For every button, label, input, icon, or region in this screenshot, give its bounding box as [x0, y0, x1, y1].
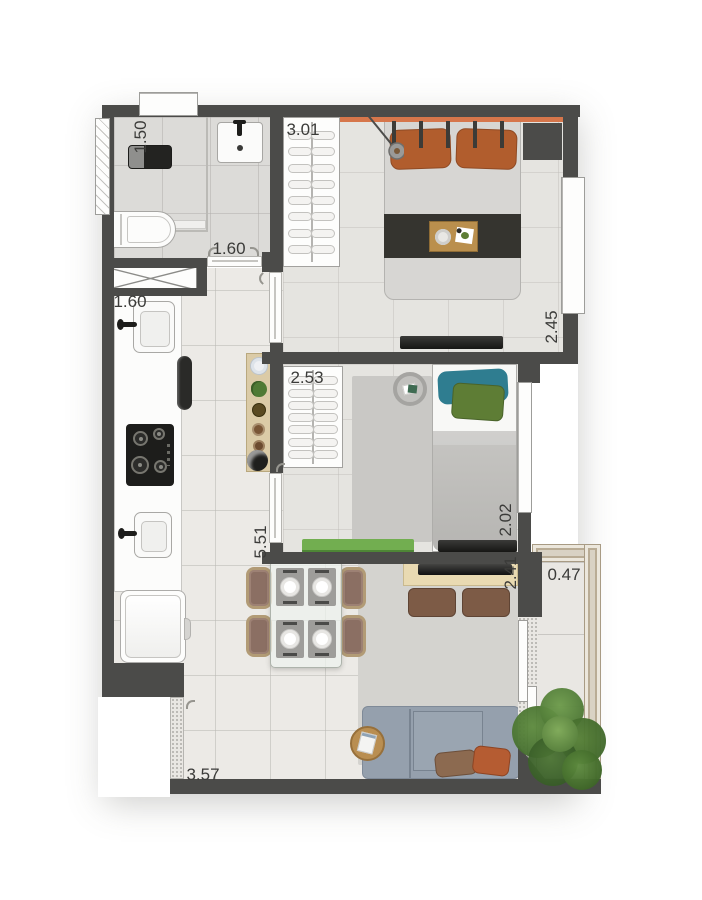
cooktop — [126, 424, 174, 486]
wardrobe-rail — [311, 122, 313, 261]
dim-bedroom1-wardrobe: 3.01 — [286, 120, 319, 140]
burner — [154, 460, 167, 473]
book — [357, 731, 377, 754]
hanger-row — [288, 389, 338, 397]
bathroom-left-window — [95, 118, 110, 215]
wall-bedroom1-left-upper — [270, 105, 283, 252]
wall-bathroom-bottom — [102, 258, 207, 268]
dim-bedroom1-depth: 2.45 — [542, 310, 562, 343]
wall-kitchen-step — [102, 663, 184, 697]
entry-door — [170, 697, 184, 779]
bedroom1-window — [561, 177, 585, 314]
dim-bedroom2-wardrobe: 2.53 — [290, 368, 323, 388]
sink-bowl — [141, 521, 167, 552]
bedroom2-tv — [438, 540, 517, 552]
hanger-row — [288, 196, 335, 204]
place-setting — [308, 620, 336, 658]
bed-pillow-green — [451, 382, 505, 422]
dining-chair — [340, 615, 366, 657]
tray-napkin — [455, 227, 474, 244]
plate — [280, 629, 300, 649]
dim-balcony-width: 0.47 — [547, 565, 580, 585]
dim-bathroom-width: 1.50 — [131, 120, 151, 153]
hanger-row — [288, 212, 335, 220]
hanger-row — [288, 245, 335, 253]
wall-bedroom2-left-upper — [270, 352, 283, 473]
hanger-row — [288, 450, 338, 458]
bedroom1-tv — [400, 336, 503, 349]
floor-plan: 1.50 3.01 1.60 2.45 1.60 2.53 2.02 5.51 … — [0, 0, 702, 900]
sofa — [362, 706, 520, 779]
hanger-row — [288, 438, 338, 446]
dim-bedroom2-depth: 2.02 — [496, 503, 516, 536]
kitchen-faucet-bottom-icon — [118, 528, 125, 539]
counter-column — [177, 356, 192, 410]
hanger-row — [288, 425, 338, 433]
round-pouf — [393, 372, 427, 406]
door-leaf — [212, 260, 258, 262]
door-leaf — [274, 277, 276, 339]
dim-living-length: 3.57 — [186, 765, 219, 785]
bedroom1-door — [269, 272, 282, 343]
toilet — [106, 211, 176, 248]
sofa-chaise-line — [409, 709, 411, 778]
door-leaf — [274, 478, 276, 538]
decor-bowl — [252, 403, 266, 417]
plate — [312, 577, 332, 597]
hanger-row — [288, 229, 335, 237]
floor-pouf — [408, 588, 456, 617]
fridge-door — [125, 595, 181, 658]
hanger-row — [288, 180, 335, 188]
dim-bathroom-door: 1.60 — [212, 239, 245, 259]
headboard-slat — [446, 121, 450, 148]
sink-bowl — [140, 311, 170, 347]
burner — [131, 456, 149, 474]
nightstand — [523, 123, 562, 160]
plate — [280, 577, 300, 597]
cooktop-knobs — [167, 444, 170, 466]
breakfast-tray — [429, 221, 478, 252]
kitchen-sink-bottom — [134, 512, 172, 558]
plate — [312, 629, 332, 649]
fridge-hinge — [184, 618, 191, 640]
headboard-slat — [473, 121, 477, 148]
shaft-x-icon — [105, 267, 196, 290]
side-table — [350, 726, 385, 761]
door-hinge-icon — [276, 463, 285, 472]
balcony-plant — [542, 716, 578, 752]
burner — [133, 431, 148, 446]
tray-plate — [435, 229, 451, 245]
headboard-slat — [419, 121, 423, 148]
entry-door-handle-icon — [186, 700, 195, 709]
wall-living-balcony — [518, 552, 542, 617]
dim-kitchen-length: 5.51 — [251, 525, 271, 558]
living-tv — [418, 564, 512, 575]
kitchen-faucet-top-icon — [117, 319, 124, 330]
wall-bedroom2-bottom — [262, 552, 540, 564]
pouf-photos — [408, 385, 418, 394]
burner — [153, 428, 165, 440]
bathroom-top-window — [139, 92, 198, 116]
bed-pillow — [455, 128, 517, 170]
floor-pouf — [462, 588, 510, 617]
hanger-row — [288, 147, 335, 155]
wall-shaft-side — [197, 258, 207, 296]
bedroom2-window — [517, 382, 532, 513]
place-setting — [276, 568, 304, 606]
dim-tv-wall: 2.41 — [501, 556, 521, 589]
sofa-pillow-rust — [471, 745, 511, 777]
dim-kitchen-width: 1.60 — [113, 292, 146, 312]
hanger-row — [288, 164, 335, 172]
bench — [302, 539, 414, 553]
hanger-row — [288, 401, 338, 409]
hanger-row — [288, 413, 338, 421]
place-setting — [308, 568, 336, 606]
bathroom-sink-drain — [237, 145, 243, 151]
shower-glass-vertical — [206, 117, 208, 232]
decor-bowl — [252, 423, 265, 436]
headboard-slat — [500, 121, 504, 148]
tray-food — [461, 232, 470, 240]
dining-chair — [340, 567, 366, 609]
bathroom-sink-faucet-icon — [233, 120, 246, 124]
decor-vase — [247, 450, 268, 471]
balcony-plant — [562, 750, 602, 790]
fridge — [120, 590, 186, 663]
wall-corner-block — [262, 252, 283, 272]
outside-mask — [98, 697, 170, 797]
wall-bottom — [170, 779, 601, 794]
dining-chair — [246, 567, 272, 609]
toilet-tank-line — [120, 214, 122, 245]
place-setting — [276, 620, 304, 658]
dining-chair — [246, 615, 272, 657]
decor-plant — [251, 381, 267, 397]
toilet-seat — [127, 216, 171, 243]
